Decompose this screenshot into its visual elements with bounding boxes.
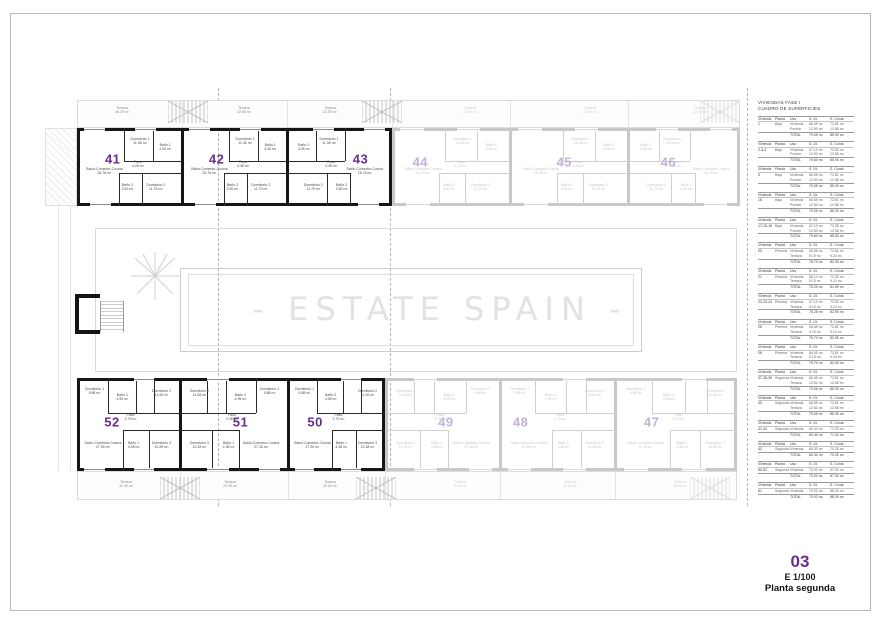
window — [341, 378, 360, 381]
window — [207, 468, 229, 471]
interior-wall — [142, 173, 143, 206]
room-label-dorm1: Dormitorio 111.06 m² — [663, 137, 682, 145]
interior-wall — [226, 378, 227, 413]
interior-wall — [153, 128, 154, 161]
room-label-bano2: Baño 23.90 m² — [226, 183, 238, 191]
terrace-label: Terraza23.05 m² — [563, 480, 577, 488]
room-label-dorm2: Dormitorio 211.79 m² — [251, 183, 270, 191]
window — [195, 203, 216, 206]
interior-wall — [434, 378, 435, 413]
interior-wall — [466, 378, 467, 413]
terrace-divider — [628, 101, 629, 127]
surface-block-37-38-39: ViviendaPlantaUsoS. Út.S. Const.37-38-39… — [758, 369, 854, 391]
room-label-bano2: Baño 23.90 m² — [561, 183, 573, 191]
sheet-scale: E 1/100 — [744, 572, 856, 584]
window — [518, 128, 542, 131]
room-label-paso: Paso4.28 m² — [132, 160, 144, 168]
room-label-bano2: Baño 24.95 m² — [545, 393, 557, 401]
interior-wall — [327, 173, 328, 206]
surface-block-40: ViviendaPlantaUsoS. Út.S. Const.40Segund… — [758, 395, 854, 417]
window — [364, 128, 385, 131]
room-label-salon: Salón-Comedor-Cocina26.76 m² — [346, 167, 383, 175]
room-label-paso: Paso2.48 m² — [226, 413, 238, 421]
unit-number-41: 41 — [105, 152, 120, 167]
window — [90, 203, 111, 206]
interior-wall — [557, 173, 558, 206]
room-label-paso: Paso4.28 m² — [669, 160, 681, 168]
room-label-salon: Salón-Comedor-Cocina27.26 m² — [627, 441, 664, 449]
interior-wall — [332, 430, 385, 431]
room-label-dorm1: Dormitorio 19.88 m² — [260, 387, 279, 395]
room-label-dorm2: Dormitorio 211.79 m² — [471, 183, 490, 191]
interior-wall — [258, 128, 259, 161]
interior-wall — [224, 173, 287, 174]
interior-wall — [628, 173, 695, 174]
window — [563, 378, 586, 381]
room-label-dorm1: Dormitorio 19.88 m² — [626, 387, 645, 395]
interior-wall — [448, 430, 449, 471]
party-wall — [614, 378, 617, 471]
interior-wall — [420, 430, 421, 471]
room-label-salon: Salón-Comedor-Cocina27.26 m² — [243, 441, 280, 449]
room-label-bano1: Baño 14.38 m² — [128, 441, 140, 449]
room-label-dorm2: Dormitorio 211.06 m² — [152, 389, 171, 397]
room-label-dorm1: Dormitorio 19.88 m² — [295, 387, 314, 395]
left-terrace-hatch — [45, 128, 77, 206]
surface-block-41-43: ViviendaPlantaUsoS. Út.S. Const.41-43Seg… — [758, 420, 854, 437]
interior-wall — [552, 430, 615, 431]
room-label-bano1: Baño 14.38 m² — [335, 441, 347, 449]
plan-right-boundary-line — [747, 88, 748, 506]
party-wall — [627, 128, 630, 206]
interior-wall — [535, 413, 616, 414]
window — [406, 203, 430, 206]
terrace-divider — [615, 472, 616, 499]
room-label-salon: Salón-Comedor-Cocina27.26 m² — [294, 441, 331, 449]
room-label-bano1: Baño 14.06 m² — [264, 143, 276, 151]
terrace-label: Terraza41.09 m² — [119, 480, 133, 488]
window — [508, 468, 531, 471]
interior-wall — [224, 173, 225, 206]
terrace-divider — [510, 101, 511, 127]
window — [414, 378, 437, 381]
interior-wall — [343, 378, 344, 413]
party-wall — [499, 378, 502, 471]
room-label-paso: Paso4.28 m² — [325, 160, 337, 168]
window — [682, 378, 706, 381]
terrace-label: Terraza22.55 m² — [237, 106, 251, 114]
window — [84, 468, 105, 471]
room-label-bano2: Baño 24.95 m² — [443, 393, 455, 401]
interior-wall — [700, 430, 701, 471]
interior-wall — [108, 378, 109, 413]
room-label-bano2: Baño 23.90 m² — [680, 183, 692, 191]
interior-wall — [439, 173, 510, 174]
room-label-paso: Paso2.79 m² — [434, 413, 446, 421]
window — [400, 128, 424, 131]
room-label-salon: Salón-Comedor-Cocina26.76 m² — [191, 167, 228, 175]
room-label-salon: Salón-Comedor-Cocina26.76 m² — [522, 167, 559, 175]
window — [457, 128, 481, 131]
interior-wall — [317, 413, 385, 414]
window — [134, 378, 155, 381]
window — [682, 468, 706, 471]
room-label-bano2: Baño 23.90 m² — [336, 183, 348, 191]
interior-wall — [123, 430, 180, 431]
interior-wall — [552, 430, 553, 471]
window — [704, 203, 726, 206]
terrace-label: Terraza22.55 m² — [583, 106, 597, 114]
room-label-dorm3: Dormitorio 310.28 m² — [190, 441, 209, 449]
party-wall — [286, 128, 289, 206]
room-label-dorm2: Dormitorio 211.06 m² — [396, 389, 415, 397]
room-label-bano1: Baño 14.38 m² — [557, 441, 569, 449]
room-label-dorm3: Dormitorio 310.28 m² — [152, 441, 171, 449]
window — [259, 468, 281, 471]
room-label-bano1: Baño 14.38 m² — [223, 441, 235, 449]
surface-block-1: ViviendaPlantaUsoS. Út.S. Const.1BajaViv… — [758, 116, 854, 138]
party-wall — [181, 128, 184, 206]
room-label-salon: Salón-Comedor-Cocina27.26 m² — [510, 441, 547, 449]
party-wall — [287, 378, 290, 471]
watermark: - ESTATE SPAIN - — [180, 290, 700, 328]
interior-wall — [345, 128, 346, 161]
room-label-bano1: Baño 14.06 m² — [603, 143, 615, 151]
room-label-bano1: Baño 14.06 m² — [640, 143, 652, 151]
unit-number-50: 50 — [307, 414, 322, 429]
window — [313, 128, 334, 131]
window — [189, 128, 210, 131]
interior-wall — [690, 128, 691, 161]
unit-number-52: 52 — [104, 414, 119, 429]
terrace-divider — [288, 472, 289, 499]
surface-block-50-52: ViviendaPlantaUsoS. Út.S. Const.50-52Seg… — [758, 461, 854, 478]
terrace-stairs-icon — [356, 477, 396, 504]
room-label-dorm3: Dormitorio 310.28 m² — [585, 441, 604, 449]
window — [469, 468, 492, 471]
surface-block-26: ViviendaPlantaUsoS. Út.S. Const.26Primer… — [758, 344, 854, 366]
interior-wall — [583, 173, 584, 206]
interior-wall — [149, 430, 150, 471]
window — [240, 128, 261, 131]
interior-wall — [439, 173, 440, 206]
room-label-bano1: Baño 14.06 m² — [159, 143, 171, 151]
room-label-dorm1: Dormitorio 111.06 m² — [319, 137, 338, 145]
room-label-bano2: Baño 23.90 m² — [443, 183, 455, 191]
terrace-label: Terraza23.05 m² — [673, 480, 687, 488]
surface-block-16: ViviendaPlantaUsoS. Út.S. Const.16BajaVi… — [758, 192, 854, 214]
room-label-paso: Paso2.79 m² — [554, 413, 566, 421]
surface-block-5: ViviendaPlantaUsoS. Út.S. Const.5BajaViv… — [758, 166, 854, 188]
stairwell-walls — [75, 294, 100, 334]
room-label-salon: Salón-Comedor-Cocina26.76 m² — [693, 167, 730, 175]
surface-block-51: ViviendaPlantaUsoS. Út.S. Const.51Segund… — [758, 482, 854, 499]
unit-number-47: 47 — [644, 414, 659, 429]
interior-wall — [557, 173, 628, 174]
interior-wall — [136, 378, 137, 413]
room-label-paso: Paso4.28 m² — [573, 160, 585, 168]
room-label-dorm2: Dormitorio 211.06 m² — [585, 389, 604, 397]
room-label-dorm1: Dormitorio 111.06 m² — [235, 137, 254, 145]
room-label-dorm1: Dormitorio 111.06 m² — [130, 137, 149, 145]
terrace-stairs-icon — [160, 477, 200, 504]
room-label-salon: Salón-Comedor-Cocina26.76 m² — [404, 167, 441, 175]
terrace-stairs-icon — [362, 101, 402, 128]
interior-wall — [671, 173, 672, 206]
room-label-bano2: Baño 24.95 m² — [325, 393, 337, 401]
window — [414, 468, 437, 471]
window — [207, 378, 229, 381]
terrace-stairs-icon — [168, 101, 208, 128]
terrace-label: Terraza22.55 m² — [323, 106, 337, 114]
window — [710, 128, 732, 131]
room-label-dorm2: Dormitorio 211.79 m² — [304, 183, 323, 191]
interior-wall — [332, 430, 333, 471]
interior-wall — [465, 173, 466, 206]
terrace-label: Terraza46.19 m² — [115, 106, 129, 114]
room-label-paso: Paso2.79 m² — [125, 413, 137, 421]
room-label-paso: Paso2.79 m² — [333, 413, 345, 421]
room-label-bano1: Baño 14.06 m² — [485, 143, 497, 151]
room-label-salon: Salón-Comedor-Cocina26.76 m² — [86, 167, 123, 175]
room-label-dorm1: Dormitorio 19.88 m² — [471, 387, 490, 395]
interior-wall — [350, 173, 351, 206]
window — [84, 128, 105, 131]
window — [135, 128, 156, 131]
room-label-dorm1: Dormitorio 19.88 m² — [85, 387, 104, 395]
interior-wall — [652, 413, 737, 414]
terrace-stairs-icon — [690, 477, 730, 504]
room-label-paso: Paso4.28 m² — [455, 160, 467, 168]
interior-wall — [247, 173, 248, 206]
title-block: 03 E 1/100 Planta segunda — [744, 553, 856, 596]
window — [524, 203, 548, 206]
interior-wall — [124, 128, 125, 161]
room-label-paso: Paso2.79 m² — [673, 413, 685, 421]
interior-wall — [180, 430, 239, 431]
interior-wall — [685, 378, 686, 413]
interior-wall — [239, 430, 240, 471]
window — [295, 468, 314, 471]
room-label-dorm1: Dormitorio 111.06 m² — [453, 137, 472, 145]
room-label-dorm2: Dormitorio 211.06 m² — [358, 389, 377, 397]
left-edge-line — [58, 206, 59, 471]
plan-name: Planta segunda — [744, 583, 856, 595]
surface-block-21: ViviendaPlantaUsoS. Út.S. Const.21Primer… — [758, 268, 854, 290]
room-label-dorm3: Dormitorio 310.28 m² — [706, 441, 725, 449]
interior-wall — [445, 128, 446, 161]
unit-number-48: 48 — [513, 414, 528, 429]
interior-wall — [229, 128, 230, 161]
room-label-dorm2: Dormitorio 211.06 m² — [706, 389, 725, 397]
surface-block-2-3-4: ViviendaPlantaUsoS. Út.S. Const.2-3-4Baj… — [758, 141, 854, 163]
interior-wall — [287, 173, 350, 174]
window — [656, 128, 678, 131]
surface-block-25: ViviendaPlantaUsoS. Út.S. Const.25Primer… — [758, 319, 854, 341]
interior-wall — [652, 378, 653, 413]
interior-wall — [385, 430, 448, 431]
unit-number-42: 42 — [209, 152, 224, 167]
window — [575, 128, 599, 131]
room-label-dorm3: Dormitorio 310.28 m² — [396, 441, 415, 449]
room-label-dorm2: Dormitorio 211.79 m² — [646, 183, 665, 191]
terrace-label: Terraza23.05 m² — [223, 480, 237, 488]
room-label-bano2: Baño 23.90 m² — [121, 183, 133, 191]
room-label-dorm1: Dormitorio 19.88 m² — [510, 387, 529, 395]
window — [358, 203, 379, 206]
room-label-dorm2: Dormitorio 211.79 m² — [589, 183, 608, 191]
room-label-dorm1: Dormitorio 111.06 m² — [571, 137, 590, 145]
surfaces-table-subtitle: CUADRO DE SUPERFICIES — [758, 106, 854, 112]
room-label-bano1: Baño 14.06 m² — [298, 143, 310, 151]
party-wall — [179, 378, 182, 471]
surfaces-table: VIVIENDAS FASE I CUADRO DE SUPERFICIES V… — [758, 100, 854, 503]
interior-wall — [316, 128, 317, 161]
unit-number-43: 43 — [353, 152, 368, 167]
room-label-salon: Salón-Comedor-Cocina27.26 m² — [453, 441, 490, 449]
room-label-dorm2: Dormitorio 211.06 m² — [190, 389, 209, 397]
interior-wall — [119, 173, 182, 174]
interior-wall — [670, 430, 737, 431]
window — [134, 468, 155, 471]
palm-tree-icon — [127, 248, 183, 304]
room-label-salon: Salón-Comedor-Cocina27.26 m² — [84, 441, 121, 449]
surfaces-table-blocks: ViviendaPlantaUsoS. Út.S. Const.1BajaViv… — [758, 116, 854, 500]
room-label-bano1: Baño 14.38 m² — [676, 441, 688, 449]
surface-block-17-18-19: ViviendaPlantaUsoS. Út.S. Const.17-18-19… — [758, 217, 854, 239]
sheet-number: 03 — [744, 553, 856, 572]
terrace-label: Terraza23.05 m² — [453, 480, 467, 488]
terrace-divider — [500, 472, 501, 499]
room-label-dorm3: Dormitorio 310.28 m² — [358, 441, 377, 449]
room-label-paso: Paso4.38 m² — [237, 160, 249, 168]
room-label-bano2: Baño 24.95 m² — [235, 393, 247, 401]
interior-wall — [566, 378, 567, 413]
terrace-divider — [287, 101, 288, 127]
interior-wall — [317, 378, 318, 413]
interior-wall — [356, 430, 357, 471]
interior-wall — [477, 128, 478, 161]
interior-wall — [212, 430, 213, 471]
room-label-dorm2: Dormitorio 211.79 m² — [146, 183, 165, 191]
window — [341, 468, 360, 471]
surface-block-22-23-24: ViviendaPlantaUsoS. Út.S. Const.22-23-24… — [758, 293, 854, 315]
terrace-label: Terraza23.05 m² — [323, 480, 337, 488]
interior-wall — [119, 173, 120, 206]
room-label-bano2: Baño 24.95 m² — [116, 393, 128, 401]
terrace-label: Terraza22.55 m² — [463, 106, 477, 114]
window — [624, 468, 648, 471]
interior-wall — [256, 378, 257, 413]
interior-wall — [595, 128, 596, 161]
interior-wall — [670, 430, 671, 471]
interior-wall — [535, 378, 536, 413]
surface-block-20: ViviendaPlantaUsoS. Út.S. Const.20Primer… — [758, 242, 854, 264]
interior-wall — [581, 430, 582, 471]
surface-block-42: ViviendaPlantaUsoS. Út.S. Const.42Segund… — [758, 441, 854, 458]
interior-wall — [123, 430, 124, 471]
party-wall — [509, 128, 512, 206]
room-label-bano2: Baño 24.95 m² — [663, 393, 675, 401]
interior-wall — [695, 173, 696, 206]
terrace-stairs-icon — [700, 101, 740, 128]
stairwell-treads — [100, 301, 124, 332]
left-edge-line — [70, 206, 71, 471]
window — [563, 468, 586, 471]
room-label-bano1: Baño 14.38 m² — [431, 441, 443, 449]
